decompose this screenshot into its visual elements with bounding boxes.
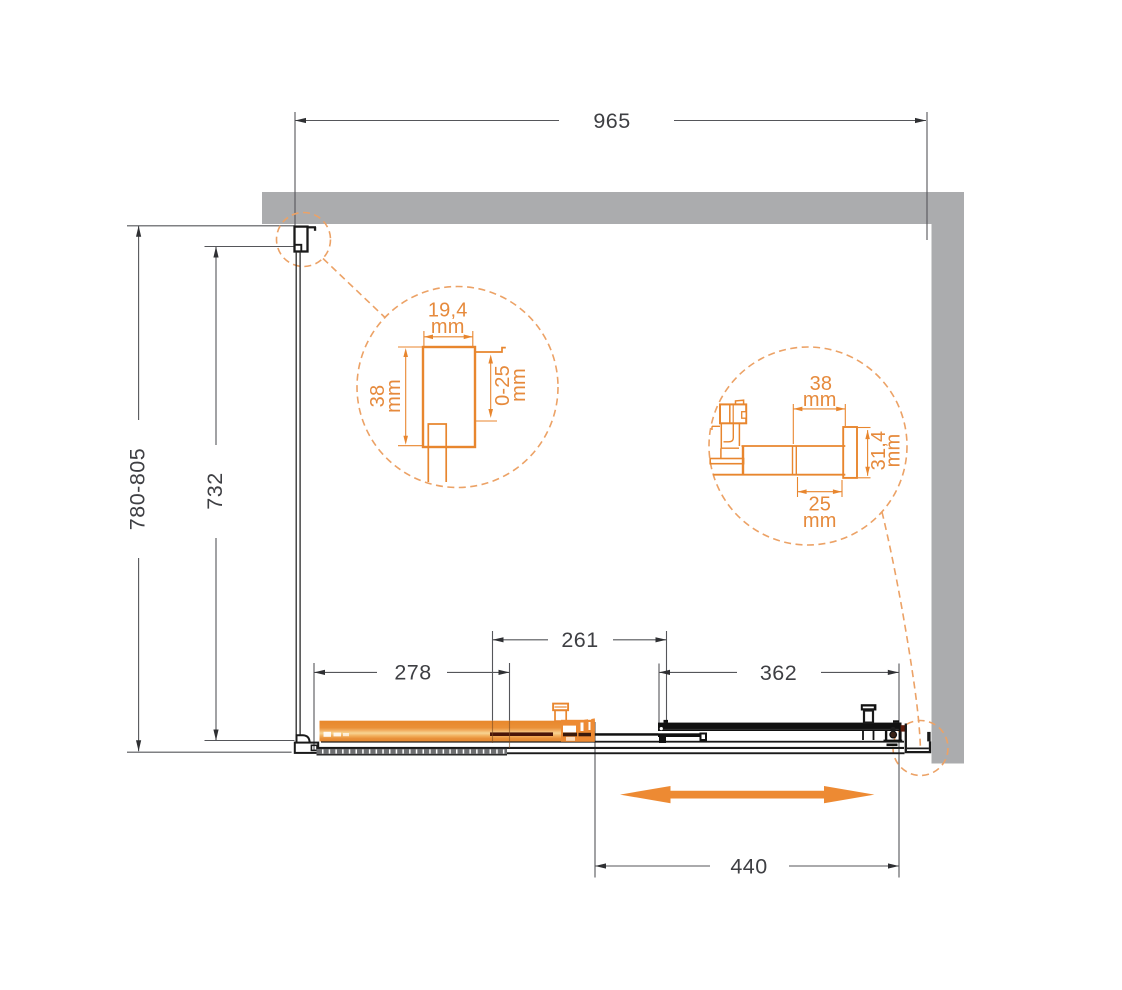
svg-text:780-805: 780-805 bbox=[126, 448, 150, 530]
svg-text:440: 440 bbox=[730, 854, 767, 878]
svg-text:261: 261 bbox=[561, 628, 598, 652]
svg-text:732: 732 bbox=[203, 472, 227, 509]
svg-text:mm: mm bbox=[508, 368, 530, 402]
svg-text:mm: mm bbox=[883, 434, 905, 468]
svg-text:278: 278 bbox=[394, 661, 431, 685]
svg-text:mm: mm bbox=[431, 316, 465, 338]
svg-text:mm: mm bbox=[383, 379, 405, 413]
svg-text:965: 965 bbox=[593, 109, 630, 133]
svg-text:mm: mm bbox=[803, 510, 837, 532]
svg-text:362: 362 bbox=[760, 661, 797, 685]
svg-text:mm: mm bbox=[803, 389, 837, 411]
